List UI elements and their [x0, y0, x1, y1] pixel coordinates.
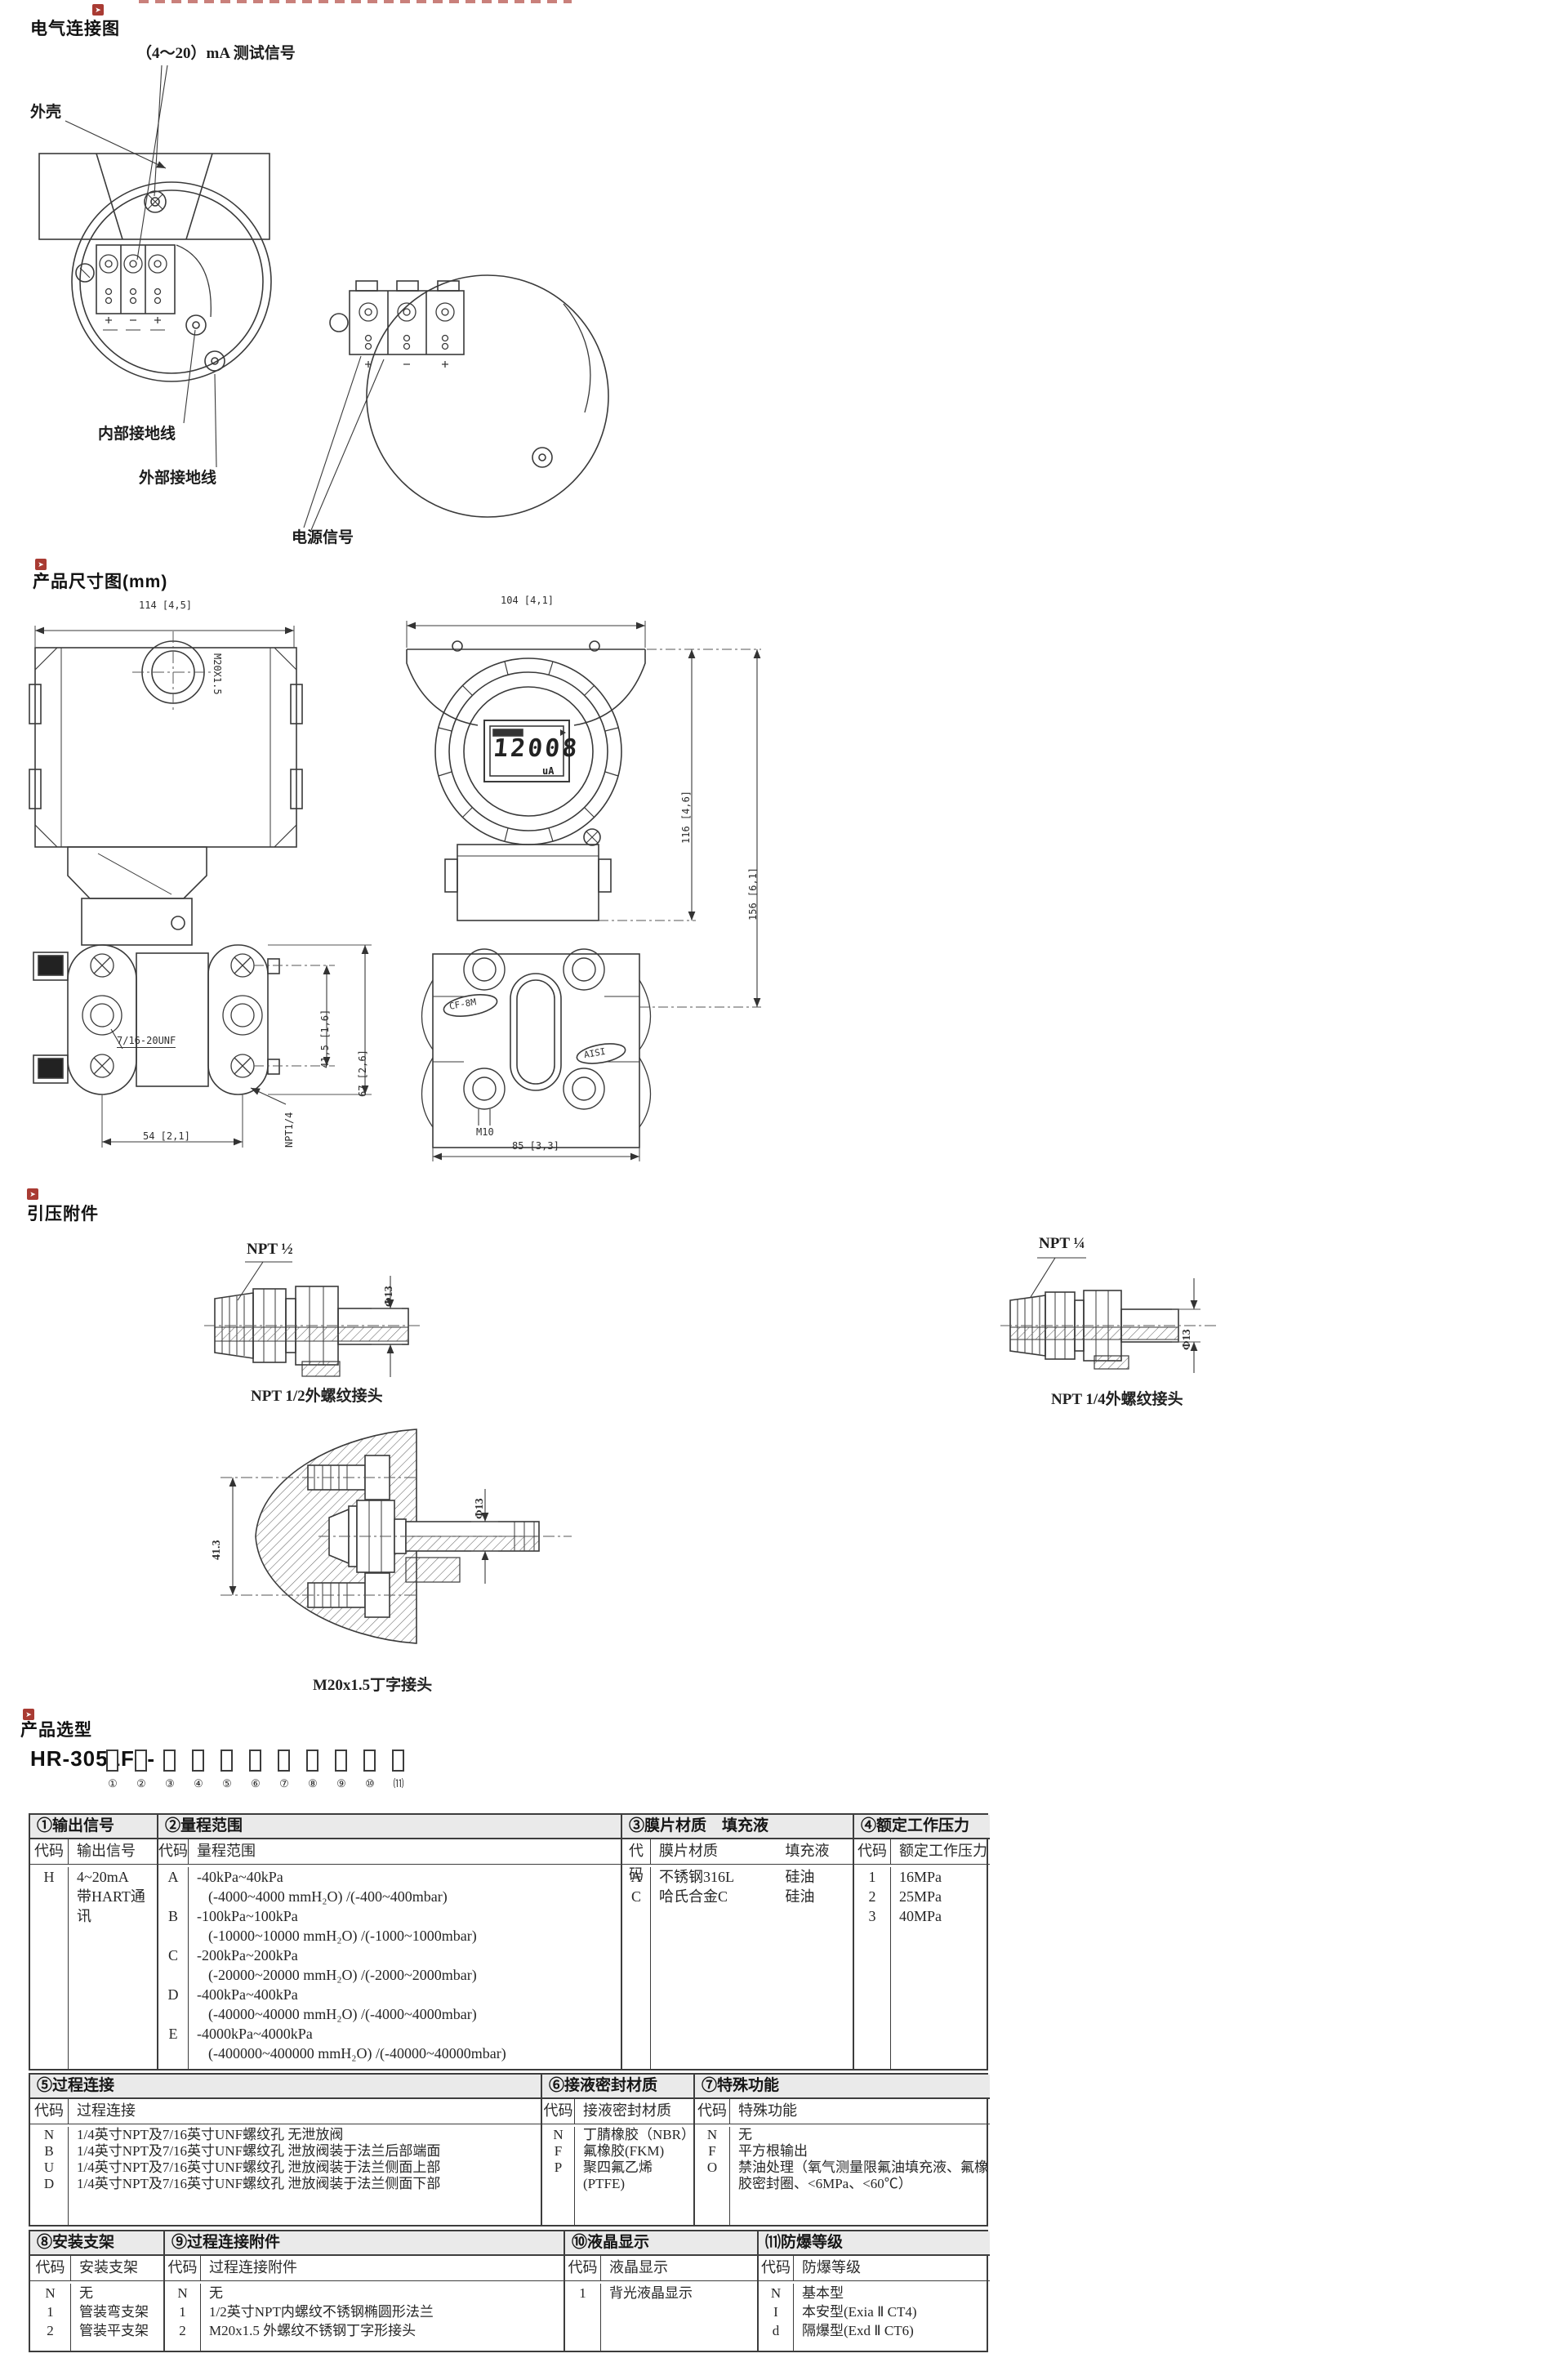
dim-67-label: 67 [2,6] [358, 1050, 367, 1097]
dim-116-label: 116 [4,6] [681, 791, 691, 844]
table-title: ④额定工作压力 [854, 1815, 990, 1839]
col-desc: 额定工作压力 [891, 1839, 990, 1864]
table-column-headers: 代码 液晶显示 [565, 2256, 757, 2281]
desc-cell: 禁油处理（氧气测量限氟油填充液、氟橡胶密封圈、<6MPa、<60℃） [730, 2160, 990, 2192]
desc-cell: 管装平支架 [71, 2321, 163, 2340]
table-title: ⑩液晶显示 [565, 2231, 757, 2256]
housing-label: 外壳 [30, 104, 61, 122]
code-cell: H [30, 1867, 69, 1926]
table-body: A 不锈钢316L 硅油 C 哈氏合金C 硅油 [622, 1865, 853, 2069]
model-code-box-9 [335, 1750, 347, 1772]
table-row: N无 [695, 2127, 990, 2143]
code-cell: C [622, 1887, 651, 1906]
anchor-thread-label: M10 [476, 1127, 494, 1137]
table-rated-pressure: ④额定工作压力 代码 额定工作压力 116MPa 225MPa 340MPa [853, 1815, 990, 2069]
code-cell: 2 [165, 2321, 201, 2340]
desc-line: (-40000~40000 mmH₂O) /(-4000~4000mbar) [197, 2004, 621, 2024]
table-title: ⑾防爆等级 [759, 2231, 990, 2256]
table-body: 116MPa 225MPa 340MPa [854, 1865, 990, 2069]
code-cell: I [759, 2302, 794, 2321]
model-code-box-6 [249, 1750, 261, 1772]
desc-line: -400kPa~400kPa [197, 1985, 621, 2004]
table-filler [30, 2340, 163, 2351]
table-filler [565, 2302, 757, 2351]
table-filler [622, 1906, 853, 2069]
fill-cell: 硅油 [786, 1869, 815, 1885]
col-code: 代码 [158, 1839, 189, 1864]
table-body: N1/4英寸NPT及7/16英寸UNF螺纹孔 无泄放阀 B1/4英寸NPT及7/… [30, 2124, 541, 2225]
position-number: ⑤ [217, 1778, 237, 1789]
npt14-port-label: NPT1/4 [284, 1112, 294, 1148]
desc-cell: 40MPa [891, 1906, 990, 1926]
table-title: ⑦特殊功能 [695, 2075, 990, 2099]
col-desc: 安装支架 [71, 2256, 163, 2280]
table-row: A 不锈钢316L 硅油 [622, 1867, 853, 1887]
table-column-headers: 代码 接液密封材质 [542, 2099, 693, 2124]
code-cell: N [542, 2127, 575, 2143]
code-cell: O [695, 2160, 730, 2192]
desc-cell: 无 [730, 2127, 990, 2143]
code-cell: F [542, 2143, 575, 2160]
table-column-headers: 代码 膜片材质 填充液 [622, 1839, 853, 1865]
col-desc: 过程连接 [69, 2099, 541, 2124]
position-number: ③ [160, 1778, 180, 1789]
code-cell: 2 [30, 2321, 71, 2340]
table-title: ①输出信号 [30, 1815, 157, 1839]
table-row: N基本型 [759, 2284, 990, 2302]
npt-half-thread-label: NPT ½ [247, 1241, 293, 1259]
table-body: 1背光液晶显示 [565, 2281, 757, 2351]
desc-cell: 丁腈橡胶（NBR） [575, 2127, 693, 2143]
power-signal-label: 电源信号 [292, 529, 354, 547]
desc-line: (-400000~400000 mmH₂O) /(-40000~40000mba… [197, 2044, 621, 2063]
table-row: D1/4英寸NPT及7/16英寸UNF螺纹孔 泄放阀装于法兰侧面下部 [30, 2176, 541, 2192]
table-row: N丁腈橡胶（NBR） [542, 2127, 693, 2143]
table-row: 116MPa [854, 1867, 990, 1887]
code-cell: A [158, 1867, 189, 1906]
desc-line: -100kPa~100kPa [197, 1906, 621, 1926]
test-signal-label: （4～20）mA 测试信号 [136, 45, 296, 63]
table-filler [854, 1926, 990, 2069]
desc-cell: 不锈钢316L 硅油 [651, 1867, 853, 1887]
table-filler [30, 1926, 157, 2069]
code-cell: N [695, 2127, 730, 2143]
tee-caption: M20x1.5丁字接头 [313, 1677, 432, 1695]
section-marker-icon: ➤ [35, 559, 47, 570]
desc-cell: 无 [71, 2284, 163, 2302]
col-desc: 特殊功能 [730, 2099, 990, 2124]
col-code: 代码 [565, 2256, 601, 2280]
col-fill: 填充液 [786, 1843, 830, 1859]
table-special-function: ⑦特殊功能 代码 特殊功能 N无 F平方根输出 O禁油处理（氧气测量限氟油填充液… [693, 2075, 990, 2225]
table-column-headers: 代码 安装支架 [30, 2256, 163, 2281]
model-code-box-11 [392, 1750, 404, 1772]
model-code-box-4 [192, 1750, 204, 1772]
desc-line: -40kPa~40kPa [197, 1867, 621, 1887]
table-row: F氟橡胶(FKM) [542, 2143, 693, 2160]
table-row: C -200kPa~200kPa (-20000~20000 mmH₂O) /(… [158, 1946, 621, 1985]
col-desc: 膜片材质 填充液 [651, 1839, 853, 1864]
col-code: 代码 [30, 2099, 69, 2124]
lcd-display-value: 12008 [492, 737, 581, 761]
table-row: 11/2英寸NPT内螺纹不锈钢椭圆形法兰 [165, 2302, 563, 2321]
fill-cell: 硅油 [786, 1888, 815, 1905]
table-row: N无 [30, 2284, 163, 2302]
desc-line: 4~20mA [77, 1867, 157, 1887]
table-row: U1/4英寸NPT及7/16英寸UNF螺纹孔 泄放阀装于法兰侧面上部 [30, 2160, 541, 2176]
table-row: N1/4英寸NPT及7/16英寸UNF螺纹孔 无泄放阀 [30, 2127, 541, 2143]
phi13-label: Φ13 [384, 1286, 395, 1307]
table-title: ③膜片材质 填充液 [622, 1815, 853, 1839]
code-cell: 1 [565, 2284, 601, 2302]
table-title: ⑤过程连接 [30, 2075, 541, 2099]
position-number: ⑥ [246, 1778, 265, 1789]
desc-cell: 4~20mA 带HART通讯 [69, 1867, 157, 1926]
dim-85-label: 85 [3,3] [512, 1141, 559, 1151]
desc-cell: 1/4英寸NPT及7/16英寸UNF螺纹孔 泄放阀装于法兰侧面上部 [69, 2160, 541, 2176]
code-cell: P [542, 2160, 575, 2192]
code-cell: N [30, 2127, 69, 2143]
dim-156-label: 156 [6,1] [748, 867, 758, 920]
position-number: ⑦ [274, 1778, 294, 1789]
table-row: 225MPa [854, 1887, 990, 1906]
desc-cell: 本安型(Exia Ⅱ CT4) [794, 2302, 990, 2321]
code-cell: B [30, 2143, 69, 2160]
code-cell: B [158, 1906, 189, 1946]
col-material: 膜片材质 [659, 1839, 782, 1863]
table-row: 1管装弯支架 [30, 2302, 163, 2321]
desc-cell: M20x1.5 外螺纹不锈钢丁字形接头 [201, 2321, 563, 2340]
model-code-box-10 [363, 1750, 376, 1772]
table-row: 2M20x1.5 外螺纹不锈钢丁字形接头 [165, 2321, 563, 2340]
code-cell: N [30, 2284, 71, 2302]
model-code-box-1 [106, 1750, 118, 1772]
table-column-headers: 代码 输出信号 [30, 1839, 157, 1865]
section-marker-icon: ➤ [23, 1709, 34, 1720]
col-code: 代码 [854, 1839, 891, 1864]
desc-line: (-10000~10000 mmH₂O) /(-1000~1000mbar) [197, 1926, 621, 1946]
table-row: d隔爆型(Exd Ⅱ CT6) [759, 2321, 990, 2340]
fitting-drawings [0, 1176, 1388, 1715]
material-cell: 不锈钢316L [659, 1867, 782, 1887]
code-cell: d [759, 2321, 794, 2340]
table-row: D -400kPa~400kPa (-40000~40000 mmH₂O) /(… [158, 1985, 621, 2024]
table-body: N基本型 I本安型(Exia Ⅱ CT4) d隔爆型(Exd Ⅱ CT6) [759, 2281, 990, 2351]
datasheet-page: ➤ 电气连接图 [0, 0, 1568, 2358]
col-desc: 液晶显示 [601, 2256, 757, 2280]
col-code: 代码 [622, 1839, 651, 1864]
npt-quarter-caption: NPT 1/4外螺纹接头 [1051, 1391, 1183, 1409]
desc-cell: 背光液晶显示 [601, 2284, 757, 2302]
npt-half-caption: NPT 1/2外螺纹接头 [251, 1388, 383, 1406]
code-cell: N [165, 2284, 201, 2302]
table-body: H 4~20mA 带HART通讯 [30, 1865, 157, 2069]
desc-cell: 平方根输出 [730, 2143, 990, 2160]
desc-cell: 无 [201, 2284, 563, 2302]
table-diaphragm-fill: ③膜片材质 填充液 代码 膜片材质 填充液 A 不锈钢316L 硅油 C [621, 1815, 853, 2069]
position-number: ⑨ [332, 1778, 351, 1789]
table-column-headers: 代码 额定工作压力 [854, 1839, 990, 1865]
lcd-display-unit: uA [542, 766, 554, 776]
col-code: 代码 [165, 2256, 201, 2280]
col-desc: 过程连接附件 [201, 2256, 563, 2280]
table-row: 1背光液晶显示 [565, 2284, 757, 2302]
desc-cell: 1/4英寸NPT及7/16英寸UNF螺纹孔 泄放阀装于法兰后部端面 [69, 2143, 541, 2160]
desc-cell: 1/4英寸NPT及7/16英寸UNF螺纹孔 无泄放阀 [69, 2127, 541, 2143]
table-column-headers: 代码 防爆等级 [759, 2256, 990, 2281]
col-code: 代码 [30, 2256, 71, 2280]
desc-cell: 氟橡胶(FKM) [575, 2143, 693, 2160]
table-column-headers: 代码 过程连接 [30, 2099, 541, 2124]
table-row: I本安型(Exia Ⅱ CT4) [759, 2302, 990, 2321]
position-number: ⑧ [303, 1778, 323, 1789]
table-lcd-display: ⑩液晶显示 代码 液晶显示 1背光液晶显示 [563, 2231, 757, 2351]
table-title: ⑧安装支架 [30, 2231, 163, 2256]
desc-cell: -40kPa~40kPa (-4000~4000 mmH₂O) /(-400~4… [189, 1867, 621, 1906]
table-output-signal: ①输出信号 代码 输出信号 H 4~20mA 带HART通讯 [30, 1815, 157, 2069]
table-column-headers: 代码 过程连接附件 [165, 2256, 563, 2281]
table-body: N无 F平方根输出 O禁油处理（氧气测量限氟油填充液、氟橡胶密封圈、<6MPa、… [695, 2124, 990, 2225]
table-filler [30, 2192, 541, 2225]
table-body: A -40kPa~40kPa (-4000~4000 mmH₂O) /(-400… [158, 1865, 621, 2069]
external-ground-label: 外部接地线 [139, 470, 216, 488]
selection-table-band-2: ⑤过程连接 代码 过程连接 N1/4英寸NPT及7/16英寸UNF螺纹孔 无泄放… [29, 2073, 988, 2227]
table-body: N无 1管装弯支架 2管装平支架 [30, 2281, 163, 2351]
table-row: E -4000kPa~4000kPa (-400000~400000 mmH₂O… [158, 2024, 621, 2063]
dim-54-label: 54 [2,1] [143, 1131, 190, 1141]
desc-cell: 哈氏合金C 硅油 [651, 1887, 853, 1906]
table-mounting-bracket: ⑧安装支架 代码 安装支架 N无 1管装弯支架 2管装平支架 [30, 2231, 163, 2351]
table-filler [695, 2192, 990, 2225]
table-seal-material: ⑥接液密封材质 代码 接液密封材质 N丁腈橡胶（NBR） F氟橡胶(FKM) P… [541, 2075, 693, 2225]
col-code: 代码 [695, 2099, 730, 2124]
conduit-thread-label: M20X1.5 [212, 653, 222, 695]
col-desc: 接液密封材质 [575, 2099, 693, 2124]
desc-line: (-4000~4000 mmH₂O) /(-400~400mbar) [197, 1887, 621, 1906]
table-filler [542, 2192, 693, 2225]
desc-line: -4000kPa~4000kPa [197, 2024, 621, 2044]
code-cell: E [158, 2024, 189, 2063]
model-code-box-8 [306, 1750, 318, 1772]
desc-cell: 管装弯支架 [71, 2302, 163, 2321]
code-cell: C [158, 1946, 189, 1985]
table-column-headers: 代码 量程范围 [158, 1839, 621, 1865]
table-filler [759, 2340, 990, 2351]
table-row: F平方根输出 [695, 2143, 990, 2160]
table-row: 2管装平支架 [30, 2321, 163, 2340]
desc-cell: -4000kPa~4000kPa (-400000~400000 mmH₂O) … [189, 2024, 621, 2063]
desc-cell: 1/4英寸NPT及7/16英寸UNF螺纹孔 泄放阀装于法兰侧面下部 [69, 2176, 541, 2192]
phi13-label: Φ13 [474, 1498, 486, 1519]
desc-cell: -400kPa~400kPa (-40000~40000 mmH₂O) /(-4… [189, 1985, 621, 2024]
dim-114-label: 114 [4,5] [139, 600, 192, 610]
desc-cell: -100kPa~100kPa (-10000~10000 mmH₂O) /(-1… [189, 1906, 621, 1946]
dim-104-label: 104 [4,1] [501, 595, 554, 605]
dimension-drawing [0, 572, 817, 1176]
table-column-headers: 代码 特殊功能 [695, 2099, 990, 2124]
desc-cell: 隔爆型(Exd Ⅱ CT6) [794, 2321, 990, 2340]
code-cell: U [30, 2160, 69, 2176]
electrical-connection-drawing [0, 0, 653, 572]
code-cell: F [695, 2143, 730, 2160]
code-cell: N [759, 2284, 794, 2302]
table-explosion-proof: ⑾防爆等级 代码 防爆等级 N基本型 I本安型(Exia Ⅱ CT4) d隔爆型… [757, 2231, 990, 2351]
selection-table-band-1: ①输出信号 代码 输出信号 H 4~20mA 带HART通讯 ②量程范围 代码 [29, 1813, 988, 2070]
col-code: 代码 [542, 2099, 575, 2124]
table-row: P聚四氟乙烯(PTFE) [542, 2160, 693, 2192]
col-desc: 输出信号 [69, 1839, 157, 1864]
model-code-box-7 [278, 1750, 290, 1772]
table-title: ②量程范围 [158, 1815, 621, 1839]
col-desc: 量程范围 [189, 1839, 621, 1864]
table-row: 340MPa [854, 1906, 990, 1926]
position-number: ⑩ [360, 1778, 380, 1789]
desc-line: (-20000~20000 mmH₂O) /(-2000~2000mbar) [197, 1965, 621, 1985]
desc-cell: 聚四氟乙烯(PTFE) [575, 2160, 693, 2192]
table-row: B1/4英寸NPT及7/16英寸UNF螺纹孔 泄放阀装于法兰后部端面 [30, 2143, 541, 2160]
table-row: B -100kPa~100kPa (-10000~10000 mmH₂O) /(… [158, 1906, 621, 1946]
col-code: 代码 [30, 1839, 69, 1864]
table-process-connection: ⑤过程连接 代码 过程连接 N1/4英寸NPT及7/16英寸UNF螺纹孔 无泄放… [30, 2075, 541, 2225]
table-row: C 哈氏合金C 硅油 [622, 1887, 853, 1906]
position-number: ④ [189, 1778, 208, 1789]
desc-cell: 16MPa [891, 1867, 990, 1887]
table-row: N无 [165, 2284, 563, 2302]
section-title-selection: 产品选型 [20, 1721, 92, 1740]
code-cell: D [158, 1985, 189, 2024]
table-filler [158, 2063, 621, 2069]
desc-cell: 25MPa [891, 1887, 990, 1906]
material-cell: 哈氏合金C [659, 1887, 782, 1906]
table-row: H 4~20mA 带HART通讯 [30, 1867, 157, 1926]
desc-cell: 基本型 [794, 2284, 990, 2302]
code-cell: 1 [854, 1867, 891, 1887]
position-number: ① [103, 1778, 122, 1789]
code-cell: 1 [30, 2302, 71, 2321]
code-cell: D [30, 2176, 69, 2192]
desc-line: 带HART通讯 [77, 1887, 157, 1926]
model-code-box-3 [163, 1750, 176, 1772]
table-row: A -40kPa~40kPa (-4000~4000 mmH₂O) /(-400… [158, 1867, 621, 1906]
code-cell: 3 [854, 1906, 891, 1926]
col-desc: 防爆等级 [794, 2256, 990, 2280]
position-number: ② [131, 1778, 151, 1789]
desc-line: -200kPa~200kPa [197, 1946, 621, 1965]
selection-table-band-3: ⑧安装支架 代码 安装支架 N无 1管装弯支架 2管装平支架 ⑨过程连接附件 代… [29, 2230, 988, 2352]
desc-cell: -200kPa~200kPa (-20000~20000 mmH₂O) /(-2… [189, 1946, 621, 1985]
npt-quarter-thread-label: NPT ¼ [1039, 1235, 1085, 1253]
code-cell: A [622, 1867, 651, 1887]
table-title: ⑥接液密封材质 [542, 2075, 693, 2099]
table-range: ②量程范围 代码 量程范围 A -40kPa~40kPa (-4000~4000… [157, 1815, 621, 2069]
code-cell: 2 [854, 1887, 891, 1906]
table-row: O禁油处理（氧气测量限氟油填充液、氟橡胶密封圈、<6MPa、<60℃） [695, 2160, 990, 2192]
model-code-box-2 [135, 1750, 147, 1772]
table-body: N无 11/2英寸NPT内螺纹不锈钢椭圆形法兰 2M20x1.5 外螺纹不锈钢丁… [165, 2281, 563, 2351]
table-title: ⑨过程连接附件 [165, 2231, 563, 2256]
desc-cell: 1/2英寸NPT内螺纹不锈钢椭圆形法兰 [201, 2302, 563, 2321]
code-cell: 1 [165, 2302, 201, 2321]
table-filler [165, 2340, 563, 2351]
col-code: 代码 [759, 2256, 794, 2280]
dim-41-5-label: 41,5 [1,6] [320, 1010, 330, 1068]
table-body: N丁腈橡胶（NBR） F氟橡胶(FKM) P聚四氟乙烯(PTFE) [542, 2124, 693, 2225]
table-connection-accessory: ⑨过程连接附件 代码 过程连接附件 N无 11/2英寸NPT内螺纹不锈钢椭圆形法… [163, 2231, 563, 2351]
position-number: ⑾ [389, 1778, 408, 1789]
bolt-thread-label: 7/16-20UNF [117, 1036, 176, 1048]
internal-ground-label: 内部接地线 [98, 426, 176, 444]
dim-41-3-label: 41.3 [212, 1540, 223, 1561]
model-code-box-5 [220, 1750, 233, 1772]
phi13-label: Φ13 [1182, 1329, 1193, 1350]
